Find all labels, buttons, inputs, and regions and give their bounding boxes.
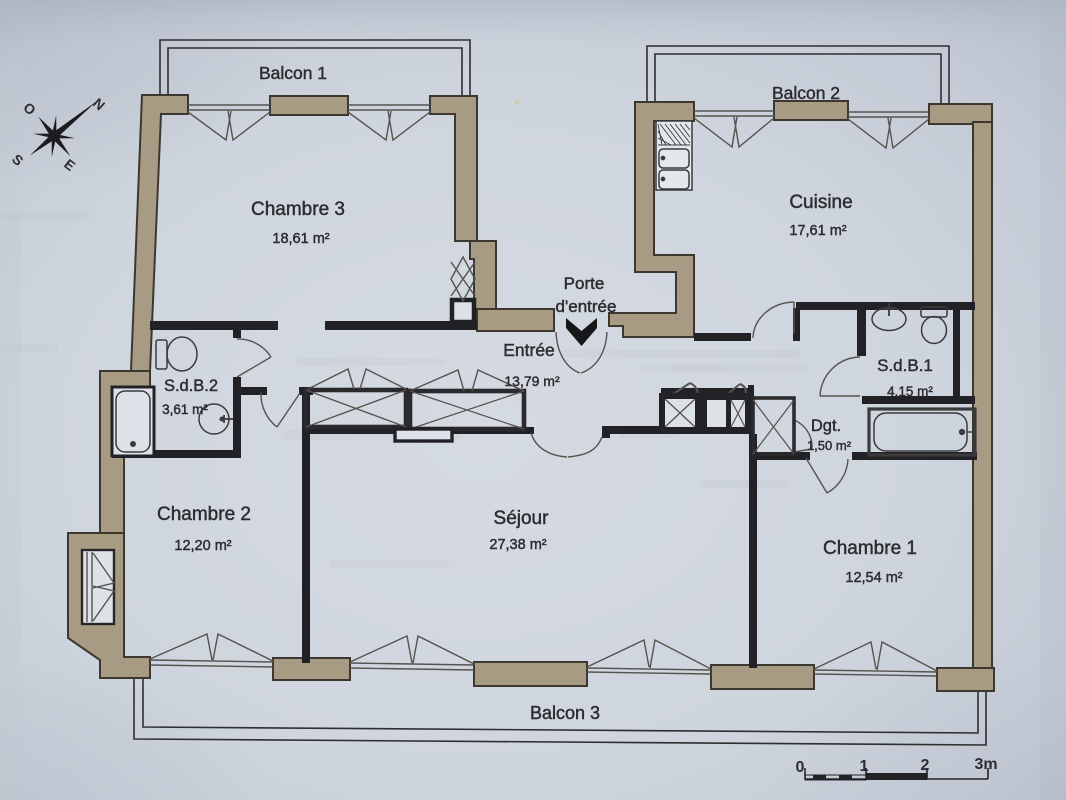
svg-text:2: 2 <box>921 757 930 774</box>
svg-text:27,38 m²: 27,38 m² <box>489 537 546 553</box>
svg-text:1: 1 <box>860 758 869 775</box>
svg-text:1,50 m²: 1,50 m² <box>807 438 852 453</box>
svg-text:Chambre 3: Chambre 3 <box>251 199 345 220</box>
svg-text:3m: 3m <box>974 756 997 773</box>
svg-text:S.d.B.1: S.d.B.1 <box>877 356 933 375</box>
svg-text:13,79 m²: 13,79 m² <box>504 373 560 389</box>
svg-text:Chambre 1: Chambre 1 <box>823 538 917 559</box>
svg-text:18,61 m²: 18,61 m² <box>272 231 329 247</box>
svg-text:Balcon 2: Balcon 2 <box>772 83 840 103</box>
svg-text:12,54 m²: 12,54 m² <box>845 570 902 586</box>
svg-text:Balcon 3: Balcon 3 <box>530 703 600 723</box>
svg-text:3,61 m²: 3,61 m² <box>162 402 208 417</box>
svg-text:Dgt.: Dgt. <box>811 417 841 435</box>
svg-text:S.d.B.2: S.d.B.2 <box>164 377 218 395</box>
svg-text:Balcon 1: Balcon 1 <box>259 63 327 83</box>
svg-text:Cuisine: Cuisine <box>789 192 852 213</box>
svg-text:17,61 m²: 17,61 m² <box>789 223 846 239</box>
svg-text:0: 0 <box>796 759 805 776</box>
svg-text:d'entrée: d'entrée <box>556 297 617 316</box>
svg-text:4,15 m²: 4,15 m² <box>887 384 933 399</box>
svg-text:Porte: Porte <box>564 274 605 293</box>
svg-text:Chambre 2: Chambre 2 <box>157 504 251 525</box>
svg-text:12,20 m²: 12,20 m² <box>174 538 231 554</box>
svg-text:Entrée: Entrée <box>503 340 555 360</box>
svg-text:Séjour: Séjour <box>494 508 550 529</box>
